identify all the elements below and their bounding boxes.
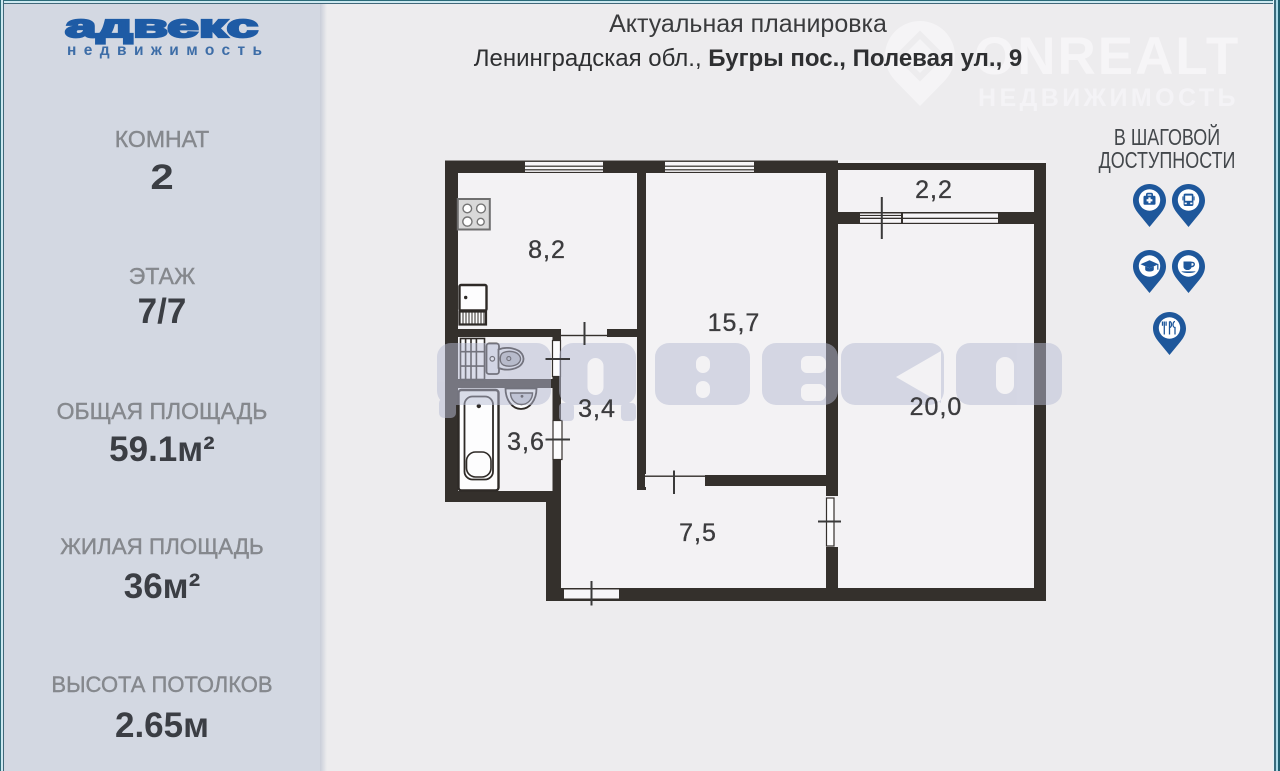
svg-text:7,5: 7,5 <box>679 519 717 547</box>
svg-text:15,7: 15,7 <box>708 309 761 337</box>
svg-text:3,4: 3,4 <box>578 395 616 423</box>
svg-text:20,0: 20,0 <box>910 393 963 421</box>
svg-text:8,2: 8,2 <box>528 236 566 264</box>
svg-text:2,2: 2,2 <box>915 176 953 204</box>
svg-text:3,6: 3,6 <box>507 428 545 456</box>
